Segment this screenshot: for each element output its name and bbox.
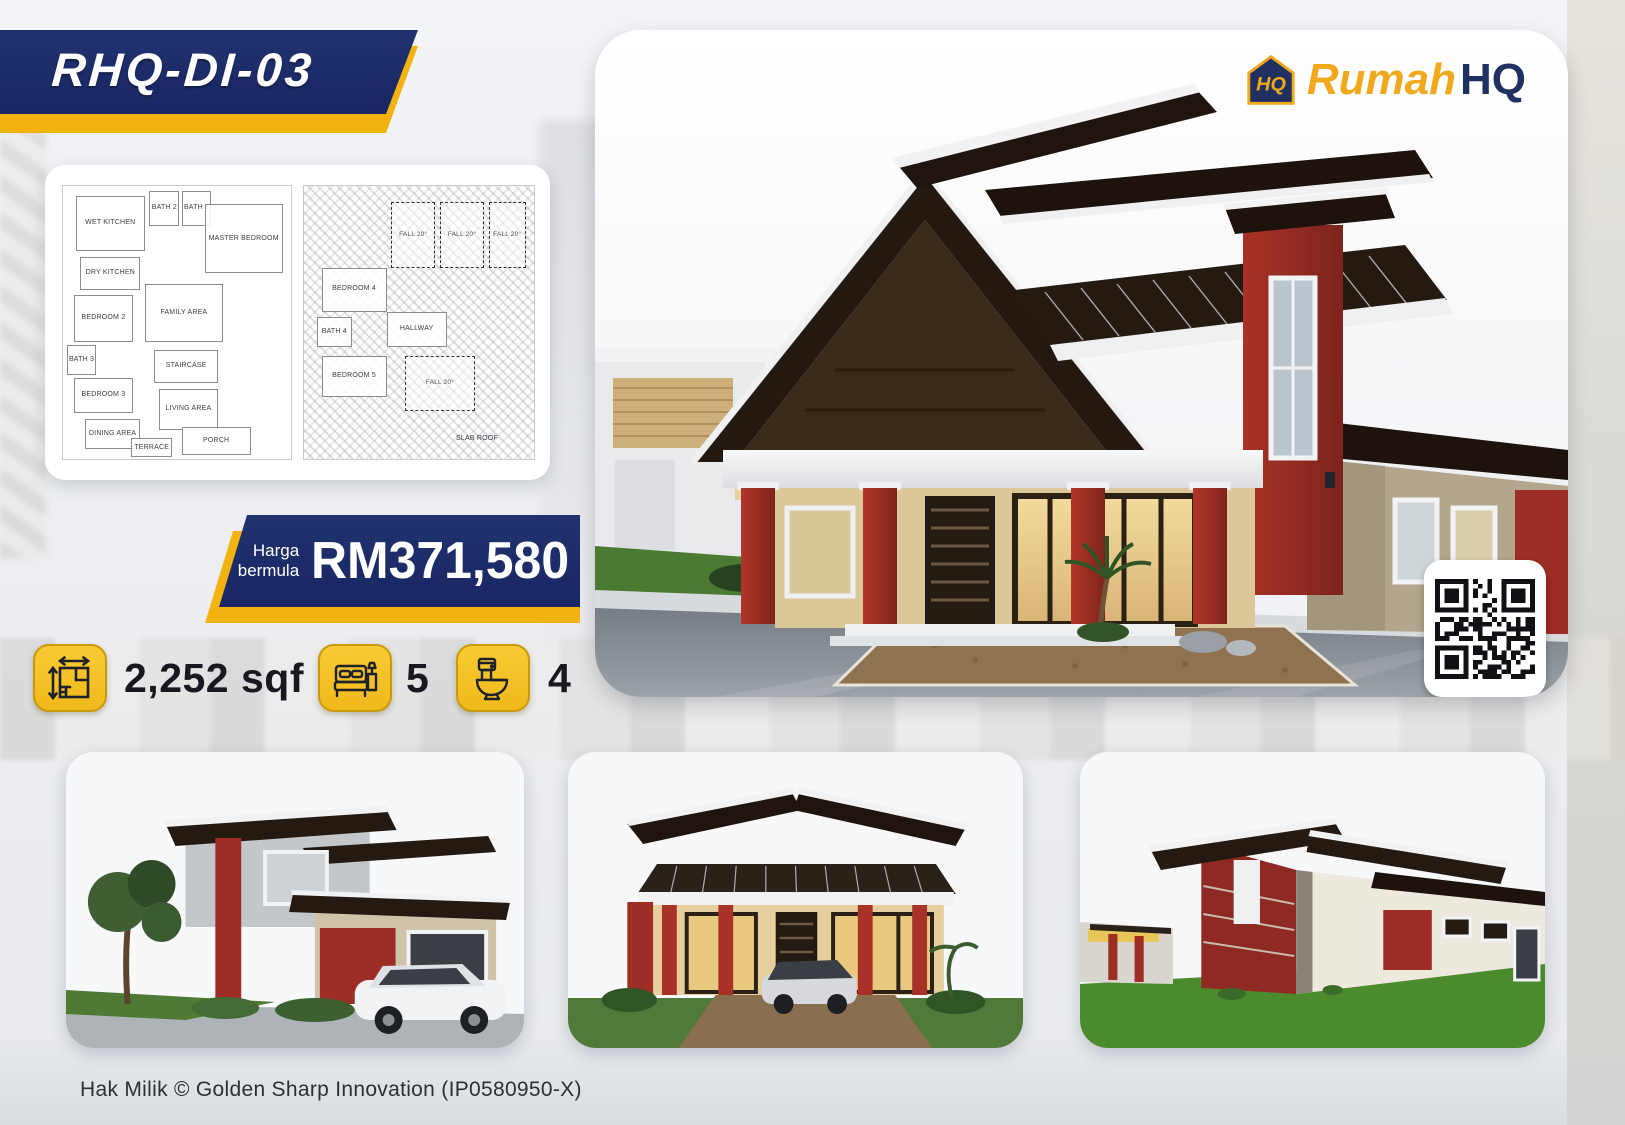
plan-room: FALL 20° <box>391 202 435 268</box>
toilet-icon <box>469 654 517 702</box>
plan-room: FALL 20° <box>405 356 475 411</box>
plan-room: TERRACE <box>131 438 172 457</box>
bedroom-spec-tile <box>318 644 392 712</box>
plan-room: SLAB ROOF <box>438 427 517 452</box>
main-house-photo: HQ Rumah HQ <box>595 30 1568 697</box>
plan-room: BATH 3 <box>67 345 97 375</box>
model-code-banner: RHQ-DI-03 <box>0 30 460 140</box>
qr-code <box>1435 579 1535 679</box>
floor-area-value: 2,252 sqf <box>124 652 304 704</box>
rumahhq-house-icon: HQ <box>1243 54 1299 106</box>
ground-floor-plan: WET KITCHEN BATH 2 BATH 1 MASTER BEDROOM… <box>62 185 292 460</box>
brand-name-navy: HQ <box>1460 55 1526 105</box>
plan-room: PORCH <box>182 427 251 455</box>
price-navy-shape: Harga bermula RM371,580 <box>205 515 580 607</box>
plan-room: DRY KITCHEN <box>80 257 140 290</box>
brand-name-yellow: Rumah <box>1307 55 1456 105</box>
thumbnail-photo-rear-view <box>1080 752 1545 1048</box>
faded-background-foliage <box>0 118 46 558</box>
floor-area-spec-tile <box>33 644 107 712</box>
plan-room: BATH 2 <box>149 191 179 227</box>
copyright-footer: Hak Milik © Golden Sharp Innovation (IP0… <box>80 1078 582 1102</box>
plan-room: FALL 20° <box>440 202 484 268</box>
thumbnail-3-illustration <box>1080 752 1545 1048</box>
plan-room: BATH 4 <box>317 317 352 347</box>
house-render-illustration <box>595 30 1568 697</box>
floor-area-icon <box>46 654 94 702</box>
thumbnail-photo-angled-view <box>66 752 524 1048</box>
price-banner: Harga bermula RM371,580 <box>205 515 585 640</box>
brand-logo: HQ Rumah HQ <box>1243 54 1526 106</box>
plan-room: BEDROOM 5 <box>322 356 387 397</box>
bathroom-count: 4 <box>548 652 571 704</box>
plan-room: HALLWAY <box>387 312 447 348</box>
floor-plan-card: WET KITCHEN BATH 2 BATH 1 MASTER BEDROOM… <box>45 165 550 480</box>
plan-room: WET KITCHEN <box>76 196 145 251</box>
plan-room: BEDROOM 3 <box>74 378 134 414</box>
plan-room: STAIRCASE <box>154 350 218 383</box>
bedroom-count: 5 <box>406 652 429 704</box>
plan-room: FALL 20° <box>489 202 526 268</box>
plan-room: LIVING AREA <box>159 389 219 430</box>
plan-room: MASTER BEDROOM <box>205 204 283 273</box>
price-label: Harga bermula <box>205 541 299 580</box>
faded-background-palm-strip <box>1567 0 1625 1125</box>
thumbnail-1-illustration <box>66 752 524 1048</box>
poster-canvas: RHQ-DI-03 WET KITCHEN BATH 2 BATH 1 MAST… <box>0 0 1625 1125</box>
bed-icon <box>331 654 379 702</box>
qr-code-card <box>1424 560 1546 697</box>
thumbnail-2-illustration <box>568 752 1023 1048</box>
model-code-text: RHQ-DI-03 <box>50 42 374 97</box>
plan-room: FAMILY AREA <box>145 284 223 342</box>
plan-room: BEDROOM 2 <box>74 295 134 342</box>
first-floor-plan: FALL 20° FALL 20° FALL 20° BEDROOM 4 BAT… <box>303 185 535 460</box>
svg-text:HQ: HQ <box>1256 74 1286 96</box>
plan-room: BEDROOM 4 <box>322 268 387 312</box>
price-label-line1: Harga <box>205 541 299 561</box>
thumbnail-photo-front-view <box>568 752 1023 1048</box>
price-value: RM371,580 <box>311 531 569 591</box>
bathroom-spec-tile <box>456 644 530 712</box>
